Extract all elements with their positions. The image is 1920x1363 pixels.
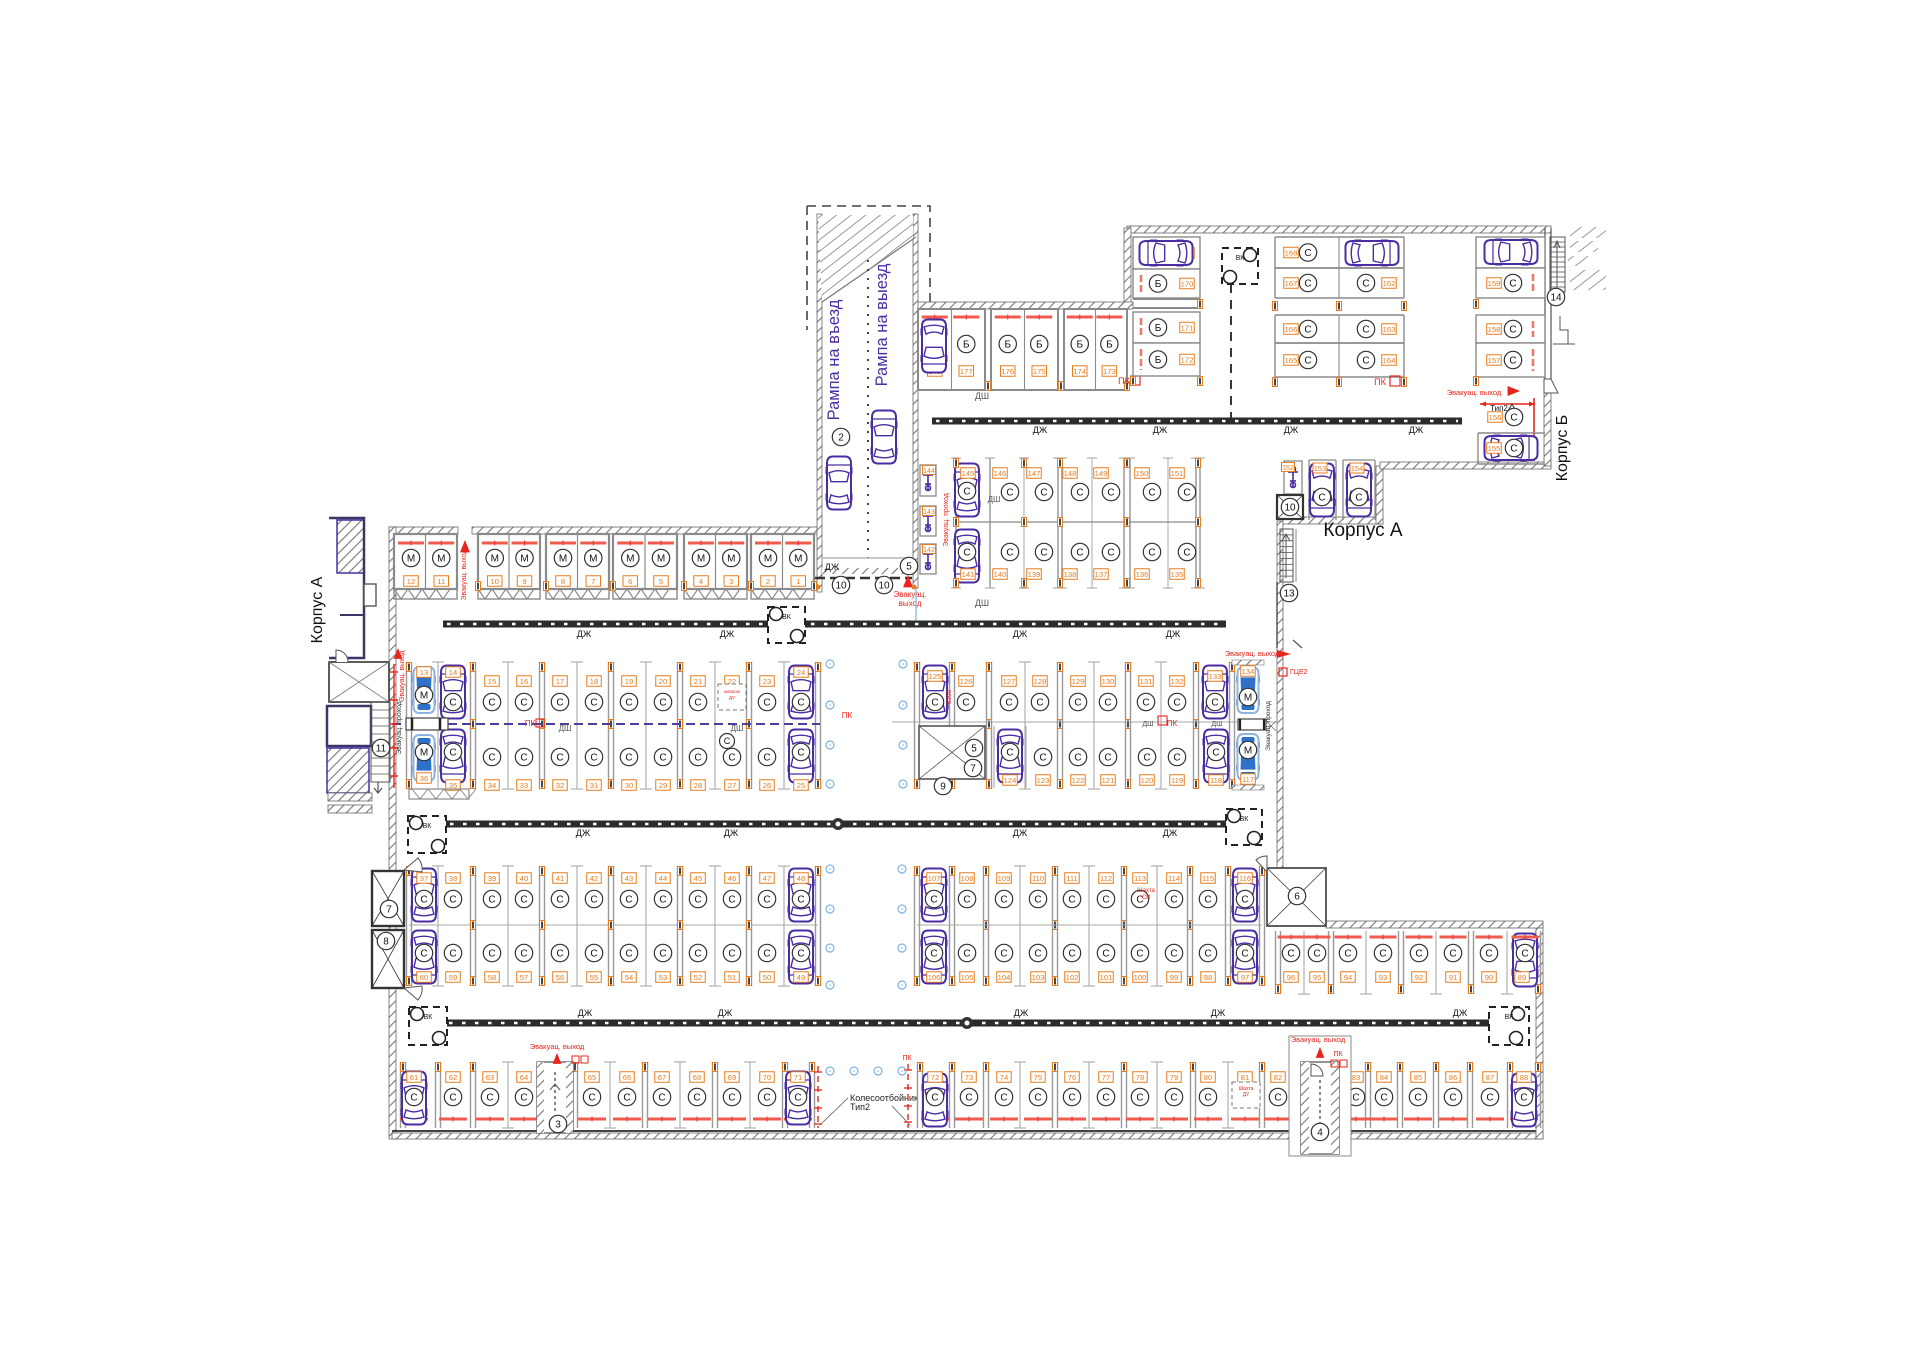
svg-text:М: М bbox=[697, 554, 705, 565]
svg-text:М: М bbox=[764, 554, 772, 565]
svg-text:Б: Б bbox=[963, 340, 970, 351]
svg-text:С: С bbox=[658, 1093, 665, 1104]
svg-text:С: С bbox=[931, 698, 938, 709]
svg-text:М: М bbox=[794, 554, 802, 565]
svg-text:10: 10 bbox=[835, 581, 847, 592]
svg-text:С: С bbox=[556, 895, 563, 906]
svg-text:М: М bbox=[1244, 746, 1252, 757]
svg-text:ДЖ: ДЖ bbox=[1211, 1008, 1226, 1018]
svg-text:146: 146 bbox=[994, 469, 1007, 478]
svg-text:С: С bbox=[763, 753, 770, 764]
svg-text:С: С bbox=[1104, 753, 1111, 764]
svg-text:136: 136 bbox=[1136, 570, 1149, 579]
svg-text:С: С bbox=[590, 949, 597, 960]
svg-text:ДЖ: ДЖ bbox=[1453, 1008, 1468, 1018]
svg-text:37: 37 bbox=[420, 874, 428, 883]
svg-text:77: 77 bbox=[1102, 1073, 1110, 1082]
svg-text:17: 17 bbox=[556, 677, 564, 686]
svg-text:М: М bbox=[520, 554, 528, 565]
svg-text:2: 2 bbox=[766, 577, 770, 586]
svg-text:С: С bbox=[1509, 279, 1516, 290]
svg-text:С: С bbox=[763, 1093, 770, 1104]
svg-text:С: С bbox=[728, 949, 735, 960]
svg-text:8: 8 bbox=[561, 577, 565, 586]
svg-text:С: С bbox=[590, 753, 597, 764]
svg-text:С: С bbox=[1034, 895, 1041, 906]
svg-text:М: М bbox=[1244, 693, 1252, 704]
svg-text:95: 95 bbox=[1313, 973, 1321, 982]
svg-text:68: 68 bbox=[693, 1073, 701, 1082]
svg-text:144: 144 bbox=[923, 468, 935, 475]
svg-text:65: 65 bbox=[588, 1073, 596, 1082]
svg-text:57: 57 bbox=[520, 973, 528, 982]
svg-text:124: 124 bbox=[1004, 776, 1017, 785]
svg-text:С: С bbox=[1074, 698, 1081, 709]
svg-text:ПК: ПК bbox=[1118, 376, 1130, 386]
svg-text:ДЖ: ДЖ bbox=[1166, 629, 1181, 639]
svg-text:ДУ: ДУ bbox=[1243, 1092, 1250, 1098]
svg-text:45: 45 bbox=[694, 874, 702, 883]
svg-text:С: С bbox=[1068, 949, 1075, 960]
svg-text:177: 177 bbox=[960, 367, 973, 376]
svg-text:С: С bbox=[1204, 1093, 1211, 1104]
svg-text:С: С bbox=[486, 1093, 493, 1104]
svg-text:ДЖ: ДЖ bbox=[576, 828, 591, 838]
svg-text:С: С bbox=[1318, 493, 1325, 504]
svg-text:С: С bbox=[694, 698, 701, 709]
svg-text:С: С bbox=[1344, 949, 1351, 960]
svg-text:52: 52 bbox=[694, 973, 702, 982]
svg-text:С: С bbox=[488, 698, 495, 709]
svg-text:83: 83 bbox=[1352, 1073, 1360, 1082]
svg-text:99: 99 bbox=[1170, 973, 1178, 982]
svg-text:155: 155 bbox=[1488, 444, 1501, 453]
svg-text:ВК: ВК bbox=[424, 1014, 434, 1021]
svg-text:С: С bbox=[1362, 325, 1369, 336]
svg-text:ДЖ: ДЖ bbox=[1409, 425, 1424, 435]
svg-text:29: 29 bbox=[659, 781, 667, 790]
svg-text:С: С bbox=[1102, 1093, 1109, 1104]
svg-text:С: С bbox=[963, 895, 970, 906]
svg-text:76: 76 bbox=[1068, 1073, 1076, 1082]
svg-text:ДШ: ДШ bbox=[1142, 721, 1153, 728]
svg-text:ДЖ: ДЖ bbox=[578, 1008, 593, 1018]
svg-text:59: 59 bbox=[449, 973, 457, 982]
svg-text:С: С bbox=[449, 949, 456, 960]
svg-text:90: 90 bbox=[1485, 973, 1493, 982]
svg-text:66: 66 bbox=[623, 1073, 631, 1082]
svg-text:С: С bbox=[1006, 748, 1013, 759]
svg-text:16: 16 bbox=[520, 677, 528, 686]
svg-text:106: 106 bbox=[928, 973, 941, 982]
svg-text:176: 176 bbox=[1001, 367, 1014, 376]
svg-text:С: С bbox=[763, 895, 770, 906]
svg-text:С: С bbox=[1074, 753, 1081, 764]
svg-text:151: 151 bbox=[1171, 469, 1184, 478]
svg-text:С: С bbox=[1034, 949, 1041, 960]
svg-text:С: С bbox=[797, 698, 804, 709]
svg-text:28: 28 bbox=[694, 781, 702, 790]
svg-text:10: 10 bbox=[1284, 503, 1296, 514]
svg-text:88: 88 bbox=[1520, 1073, 1528, 1082]
svg-text:74: 74 bbox=[1000, 1073, 1008, 1082]
svg-text:26: 26 bbox=[763, 781, 771, 790]
svg-text:27: 27 bbox=[728, 781, 736, 790]
svg-text:М: М bbox=[491, 554, 499, 565]
svg-text:145: 145 bbox=[962, 469, 975, 478]
svg-text:13: 13 bbox=[420, 668, 428, 677]
svg-text:31: 31 bbox=[590, 781, 598, 790]
svg-text:81: 81 bbox=[1241, 1073, 1249, 1082]
svg-text:44: 44 bbox=[659, 874, 667, 883]
svg-text:С: С bbox=[488, 895, 495, 906]
svg-text:С: С bbox=[590, 895, 597, 906]
svg-text:5: 5 bbox=[906, 562, 912, 573]
svg-text:19: 19 bbox=[625, 677, 633, 686]
svg-text:С: С bbox=[1362, 356, 1369, 367]
svg-text:133: 133 bbox=[1209, 672, 1222, 681]
svg-text:С: С bbox=[1000, 895, 1007, 906]
svg-text:54: 54 bbox=[625, 973, 633, 982]
svg-text:С: С bbox=[1183, 488, 1190, 499]
svg-text:113: 113 bbox=[1134, 874, 1146, 883]
svg-text:111: 111 bbox=[1066, 874, 1078, 883]
svg-text:С: С bbox=[1241, 895, 1248, 906]
svg-text:С: С bbox=[694, 949, 701, 960]
svg-text:Б: Б bbox=[1155, 279, 1162, 290]
svg-text:4: 4 bbox=[699, 577, 703, 586]
svg-text:М: М bbox=[657, 554, 665, 565]
svg-text:119: 119 bbox=[1171, 776, 1183, 785]
svg-text:ДУ: ДУ bbox=[729, 695, 735, 700]
svg-text:С: С bbox=[1102, 895, 1109, 906]
svg-text:С: С bbox=[520, 895, 527, 906]
svg-text:84: 84 bbox=[1380, 1073, 1388, 1082]
svg-text:С: С bbox=[1520, 1093, 1527, 1104]
svg-text:14: 14 bbox=[449, 668, 457, 677]
svg-text:20: 20 bbox=[659, 677, 667, 686]
svg-text:50: 50 bbox=[763, 973, 771, 982]
svg-text:32: 32 bbox=[556, 781, 564, 790]
svg-text:М: М bbox=[626, 554, 634, 565]
svg-text:С: С bbox=[1136, 1093, 1143, 1104]
svg-text:Эвакуац. проход: Эвакуац. проход bbox=[396, 701, 403, 755]
svg-text:С: С bbox=[962, 698, 969, 709]
svg-text:С: С bbox=[1006, 488, 1013, 499]
svg-text:Б: Б bbox=[1155, 323, 1162, 334]
svg-text:С: С bbox=[659, 895, 666, 906]
svg-text:С: С bbox=[520, 753, 527, 764]
svg-text:Б: Б bbox=[1004, 340, 1011, 351]
svg-text:11: 11 bbox=[437, 577, 445, 586]
svg-text:С: С bbox=[1039, 753, 1046, 764]
svg-text:выход: выход bbox=[899, 599, 922, 608]
svg-text:9: 9 bbox=[522, 577, 526, 586]
svg-text:С: С bbox=[590, 698, 597, 709]
svg-text:8: 8 bbox=[383, 937, 389, 948]
svg-text:6300: 6300 bbox=[946, 689, 953, 704]
svg-text:122: 122 bbox=[1072, 776, 1085, 785]
svg-text:157: 157 bbox=[1488, 356, 1501, 365]
svg-text:130: 130 bbox=[1102, 677, 1115, 686]
svg-text:72: 72 bbox=[931, 1073, 939, 1082]
svg-text:63: 63 bbox=[486, 1073, 494, 1082]
svg-text:53: 53 bbox=[659, 973, 667, 982]
svg-text:Корпус Б: Корпус Б bbox=[1554, 415, 1571, 482]
svg-text:3: 3 bbox=[555, 1120, 561, 1131]
svg-text:С: С bbox=[625, 949, 632, 960]
svg-text:С: С bbox=[659, 698, 666, 709]
svg-text:С: С bbox=[1000, 1093, 1007, 1104]
svg-text:С: С bbox=[763, 949, 770, 960]
svg-text:173: 173 bbox=[1103, 367, 1116, 376]
svg-text:СВ: СВ bbox=[1142, 895, 1150, 901]
svg-text:137: 137 bbox=[1095, 570, 1108, 579]
svg-text:117: 117 bbox=[1242, 775, 1254, 784]
svg-text:51: 51 bbox=[728, 973, 736, 982]
svg-text:С: С bbox=[1102, 949, 1109, 960]
svg-text:ДЖ: ДЖ bbox=[724, 828, 739, 838]
svg-text:Корпус А: Корпус А bbox=[1323, 520, 1403, 541]
svg-text:ДЖ: ДЖ bbox=[1153, 425, 1168, 435]
svg-text:ДЖ: ДЖ bbox=[577, 629, 592, 639]
svg-text:7: 7 bbox=[591, 577, 595, 586]
svg-text:163: 163 bbox=[1383, 325, 1396, 334]
svg-text:10: 10 bbox=[491, 577, 499, 586]
svg-text:ДЖ: ДЖ bbox=[1013, 828, 1028, 838]
svg-text:Рампа на выезд: Рампа на выезд bbox=[873, 263, 891, 386]
svg-text:165: 165 bbox=[1285, 356, 1298, 365]
svg-text:С: С bbox=[1107, 548, 1114, 559]
svg-text:73: 73 bbox=[965, 1073, 973, 1082]
svg-text:С: С bbox=[1148, 488, 1155, 499]
svg-text:100: 100 bbox=[1134, 973, 1147, 982]
svg-text:С: С bbox=[1173, 698, 1180, 709]
svg-text:С: С bbox=[625, 753, 632, 764]
svg-text:С: С bbox=[520, 698, 527, 709]
svg-text:39: 39 bbox=[488, 874, 496, 883]
svg-text:С: С bbox=[763, 698, 770, 709]
svg-text:С: С bbox=[1304, 248, 1311, 259]
svg-text:С: С bbox=[728, 1093, 735, 1104]
svg-text:ПК: ПК bbox=[1167, 719, 1178, 728]
svg-text:104: 104 bbox=[998, 973, 1011, 982]
svg-text:С: С bbox=[1414, 1093, 1421, 1104]
svg-text:С: С bbox=[1148, 548, 1155, 559]
svg-text:18: 18 bbox=[590, 677, 598, 686]
svg-text:С: С bbox=[1170, 895, 1177, 906]
svg-text:168: 168 bbox=[1285, 249, 1298, 258]
svg-text:96: 96 bbox=[1287, 973, 1295, 982]
svg-text:С: С bbox=[930, 949, 937, 960]
svg-text:С: С bbox=[931, 1093, 938, 1104]
svg-text:86: 86 bbox=[1449, 1073, 1457, 1082]
svg-text:С: С bbox=[659, 949, 666, 960]
svg-text:172: 172 bbox=[1181, 356, 1194, 365]
svg-text:115: 115 bbox=[1202, 874, 1214, 883]
svg-text:85: 85 bbox=[1414, 1073, 1422, 1082]
svg-text:171: 171 bbox=[1181, 324, 1194, 333]
svg-text:147: 147 bbox=[1028, 469, 1041, 478]
svg-text:ПК: ПК bbox=[842, 711, 853, 720]
svg-text:118: 118 bbox=[1210, 776, 1222, 785]
svg-text:ДЖ: ДЖ bbox=[718, 1008, 733, 1018]
svg-text:ВК: ВК bbox=[1236, 255, 1246, 262]
svg-text:15: 15 bbox=[488, 677, 496, 686]
svg-text:128: 128 bbox=[1034, 677, 1047, 686]
svg-text:С: С bbox=[797, 895, 804, 906]
svg-text:110: 110 bbox=[1032, 874, 1044, 883]
svg-text:Эвакуац. выход: Эвакуац. выход bbox=[1291, 1035, 1346, 1044]
svg-text:ДЖ: ДЖ bbox=[720, 629, 735, 639]
svg-text:152: 152 bbox=[1282, 465, 1294, 472]
svg-text:38: 38 bbox=[449, 874, 457, 883]
svg-text:ДЖ: ДЖ bbox=[1163, 828, 1178, 838]
svg-text:30: 30 bbox=[625, 781, 633, 790]
svg-text:С: С bbox=[1510, 413, 1517, 424]
svg-text:135: 135 bbox=[1171, 570, 1184, 579]
svg-text:С: С bbox=[1287, 949, 1294, 960]
svg-text:105: 105 bbox=[961, 973, 974, 982]
svg-text:С: С bbox=[1352, 1093, 1359, 1104]
svg-text:С: С bbox=[724, 736, 731, 746]
svg-text:С: С bbox=[693, 1093, 700, 1104]
svg-text:С: С bbox=[1415, 949, 1422, 960]
svg-text:141: 141 bbox=[962, 570, 975, 579]
svg-text:Б: Б bbox=[1076, 340, 1083, 351]
svg-text:С: С bbox=[1379, 949, 1386, 960]
svg-text:12: 12 bbox=[407, 577, 415, 586]
svg-text:47: 47 bbox=[763, 874, 771, 883]
svg-text:134: 134 bbox=[1242, 667, 1255, 676]
svg-text:Шахта: Шахта bbox=[1137, 888, 1155, 894]
svg-text:С: С bbox=[449, 895, 456, 906]
svg-text:ДШ: ДШ bbox=[559, 724, 572, 733]
svg-text:С: С bbox=[1040, 488, 1047, 499]
svg-text:ДШ: ДШ bbox=[731, 724, 744, 733]
svg-text:Эвакуац. выход: Эвакуац. выход bbox=[530, 1042, 585, 1051]
svg-text:ГЦЕ2: ГЦЕ2 bbox=[1290, 669, 1308, 676]
svg-text:ПК: ПК bbox=[1333, 1051, 1343, 1058]
svg-text:ВК: ВК bbox=[782, 614, 792, 621]
svg-text:126: 126 bbox=[960, 677, 973, 686]
svg-text:С: С bbox=[623, 1093, 630, 1104]
svg-text:78: 78 bbox=[1136, 1073, 1144, 1082]
svg-text:40: 40 bbox=[520, 874, 528, 883]
svg-text:125: 125 bbox=[929, 672, 942, 681]
svg-text:С: С bbox=[556, 698, 563, 709]
svg-text:С: С bbox=[488, 949, 495, 960]
svg-text:С: С bbox=[1142, 698, 1149, 709]
svg-text:93: 93 bbox=[1379, 973, 1387, 982]
svg-text:170: 170 bbox=[1181, 280, 1194, 289]
svg-text:ДЖ: ДЖ bbox=[1284, 425, 1299, 435]
svg-text:102: 102 bbox=[1066, 973, 1079, 982]
svg-text:82: 82 bbox=[1274, 1073, 1282, 1082]
svg-text:75: 75 bbox=[1034, 1073, 1042, 1082]
svg-text:С: С bbox=[1304, 356, 1311, 367]
svg-text:43: 43 bbox=[625, 874, 633, 883]
svg-text:С: С bbox=[694, 753, 701, 764]
svg-text:ДШ: ДШ bbox=[975, 391, 989, 401]
svg-text:121: 121 bbox=[1102, 776, 1115, 785]
svg-text:114: 114 bbox=[1168, 874, 1180, 883]
svg-text:148: 148 bbox=[1064, 469, 1077, 478]
svg-text:С: С bbox=[1204, 949, 1211, 960]
svg-text:150: 150 bbox=[1136, 469, 1149, 478]
svg-text:С: С bbox=[728, 895, 735, 906]
svg-text:С: С bbox=[1274, 1093, 1281, 1104]
svg-text:71: 71 bbox=[794, 1073, 802, 1082]
svg-text:С: С bbox=[556, 949, 563, 960]
svg-text:С: С bbox=[625, 698, 632, 709]
svg-text:123: 123 bbox=[1037, 776, 1050, 785]
svg-text:107: 107 bbox=[928, 874, 941, 883]
svg-text:С: С bbox=[1068, 895, 1075, 906]
svg-text:С: С bbox=[1304, 279, 1311, 290]
svg-text:Б: Б bbox=[1036, 340, 1043, 351]
svg-text:166: 166 bbox=[1285, 325, 1298, 334]
svg-text:143: 143 bbox=[923, 509, 935, 516]
svg-text:С: С bbox=[1000, 949, 1007, 960]
svg-text:69: 69 bbox=[728, 1073, 736, 1082]
svg-text:С: С bbox=[1509, 325, 1516, 336]
svg-text:ПК: ПК bbox=[525, 719, 536, 728]
svg-text:С: С bbox=[1241, 949, 1248, 960]
svg-text:М: М bbox=[559, 554, 567, 565]
svg-text:129: 129 bbox=[1072, 677, 1085, 686]
svg-text:2: 2 bbox=[838, 433, 844, 444]
svg-text:7: 7 bbox=[970, 764, 976, 775]
svg-text:80: 80 bbox=[1204, 1073, 1212, 1082]
svg-text:49: 49 bbox=[797, 973, 805, 982]
svg-text:Эвакуац. выход: Эвакуац. выход bbox=[1225, 649, 1280, 658]
svg-text:149: 149 bbox=[1095, 469, 1108, 478]
svg-text:ДШ: ДШ bbox=[1211, 721, 1222, 728]
svg-text:С: С bbox=[1449, 1093, 1456, 1104]
svg-text:98: 98 bbox=[1204, 973, 1212, 982]
svg-text:36: 36 bbox=[420, 774, 428, 783]
svg-text:С: С bbox=[1104, 698, 1111, 709]
svg-text:С: С bbox=[1170, 949, 1177, 960]
svg-text:С: С bbox=[1380, 1093, 1387, 1104]
svg-text:101: 101 bbox=[1100, 973, 1113, 982]
svg-text:Рампа на въезд: Рампа на въезд bbox=[825, 299, 843, 420]
svg-text:С: С bbox=[410, 1093, 417, 1104]
svg-text:11: 11 bbox=[376, 744, 387, 755]
svg-text:С: С bbox=[1486, 1093, 1493, 1104]
svg-text:С: С bbox=[1509, 356, 1516, 367]
svg-text:116: 116 bbox=[1239, 874, 1251, 883]
svg-text:132: 132 bbox=[1171, 677, 1184, 686]
svg-text:142: 142 bbox=[923, 547, 935, 554]
svg-text:158: 158 bbox=[1488, 325, 1501, 334]
svg-text:С: С bbox=[728, 753, 735, 764]
svg-text:138: 138 bbox=[1064, 570, 1077, 579]
svg-text:9: 9 bbox=[940, 782, 946, 793]
svg-text:Эвакуац. проход: Эвакуац. проход bbox=[943, 493, 950, 547]
svg-text:ВК: ВК bbox=[423, 823, 433, 830]
svg-text:3: 3 bbox=[729, 577, 733, 586]
svg-text:58: 58 bbox=[488, 973, 496, 982]
svg-text:159: 159 bbox=[1488, 279, 1501, 288]
svg-text:С: С bbox=[1036, 698, 1043, 709]
svg-text:С: С bbox=[659, 753, 666, 764]
svg-text:70: 70 bbox=[763, 1073, 771, 1082]
svg-text:164: 164 bbox=[1383, 356, 1396, 365]
svg-text:5: 5 bbox=[971, 744, 977, 755]
svg-text:103: 103 bbox=[1032, 973, 1045, 982]
